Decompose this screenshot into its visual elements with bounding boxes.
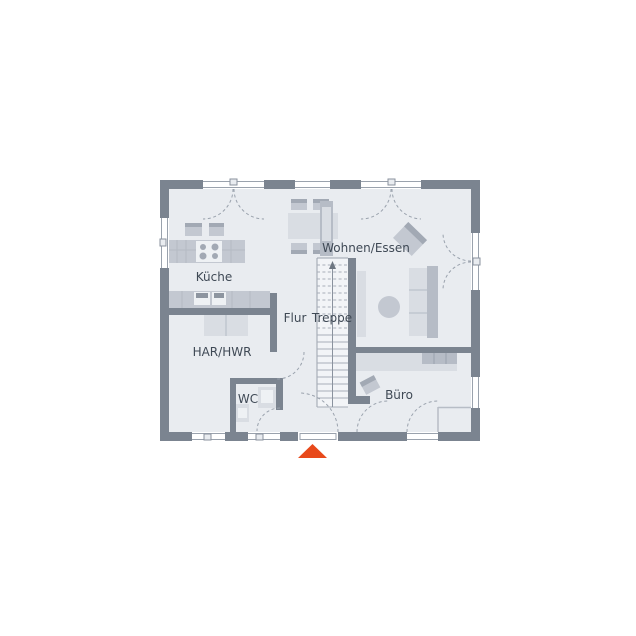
door-handle-icon bbox=[230, 179, 237, 185]
utility-appliances bbox=[204, 315, 248, 336]
floor-plan: Küche Wohnen/Essen Flur Treppe HAR/HWR W… bbox=[0, 0, 636, 636]
sofa bbox=[409, 266, 438, 338]
room-label-wohnen-essen: Wohnen/Essen bbox=[322, 241, 410, 255]
window-bottom-wc bbox=[248, 432, 280, 441]
tv-board bbox=[357, 271, 366, 337]
patio-door-top-right bbox=[361, 179, 421, 189]
staircase bbox=[317, 258, 348, 407]
door-handle-icon bbox=[473, 258, 480, 265]
window-right-office bbox=[471, 377, 480, 408]
room-label-flur: Flur bbox=[284, 311, 307, 325]
window-top-center bbox=[295, 180, 330, 189]
coffee-table bbox=[378, 296, 400, 318]
window-handle-icon bbox=[256, 434, 263, 440]
room-label-wc: WC bbox=[238, 392, 258, 406]
room-label-buero: Büro bbox=[385, 388, 413, 402]
entrance-door bbox=[298, 432, 338, 441]
patio-door-right bbox=[471, 233, 480, 290]
kitchen-counter-top bbox=[168, 240, 245, 263]
door-handle-icon bbox=[388, 179, 395, 185]
window-bottom-har bbox=[192, 432, 225, 441]
window-handle-icon bbox=[160, 239, 166, 246]
terrace-door-bottom-office bbox=[407, 432, 438, 441]
hob-icon bbox=[196, 241, 222, 262]
floor-plan-canvas: Küche Wohnen/Essen Flur Treppe HAR/HWR W… bbox=[0, 0, 636, 636]
room-label-har-hwr: HAR/HWR bbox=[193, 345, 252, 359]
patio-door-top-left bbox=[203, 179, 264, 189]
kitchen-counter-lower bbox=[168, 291, 270, 308]
office-desk bbox=[356, 352, 457, 371]
window-left bbox=[160, 218, 169, 268]
room-label-treppe: Treppe bbox=[311, 311, 352, 325]
entrance-marker-icon bbox=[298, 444, 327, 458]
window-handle-icon bbox=[204, 434, 211, 440]
room-label-kueche: Küche bbox=[196, 270, 232, 284]
